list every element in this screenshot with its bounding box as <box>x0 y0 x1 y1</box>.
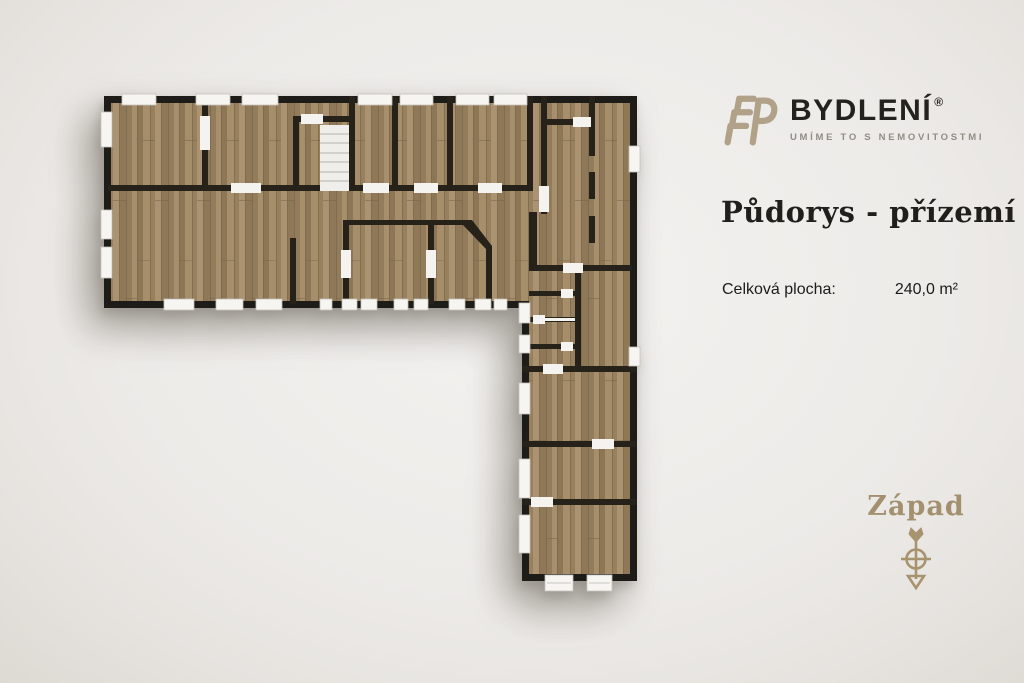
area-label: Celková plocha: <box>722 281 836 299</box>
area-value: 240,0 m² <box>895 281 958 299</box>
compass-west-arrow-icon <box>896 526 936 590</box>
staircase <box>320 125 349 191</box>
brand-name: BYDLENÍ® <box>790 96 984 126</box>
registered-mark: ® <box>934 95 943 109</box>
brand-tagline: UMÍME TO S NEMOVITOSTMI <box>790 132 984 143</box>
ep-monogram-icon <box>716 90 778 152</box>
page-title: Půdorys - přízemí <box>721 195 1016 229</box>
compass: Západ <box>858 491 974 595</box>
total-area-row: Celková plocha: 240,0 m² <box>722 281 958 299</box>
direction-label: Západ <box>858 491 974 522</box>
brand-logo: BYDLENÍ® UMÍME TO S NEMOVITOSTMI <box>716 90 984 152</box>
page: BYDLENÍ® UMÍME TO S NEMOVITOSTMI Půdorys… <box>0 0 1024 683</box>
